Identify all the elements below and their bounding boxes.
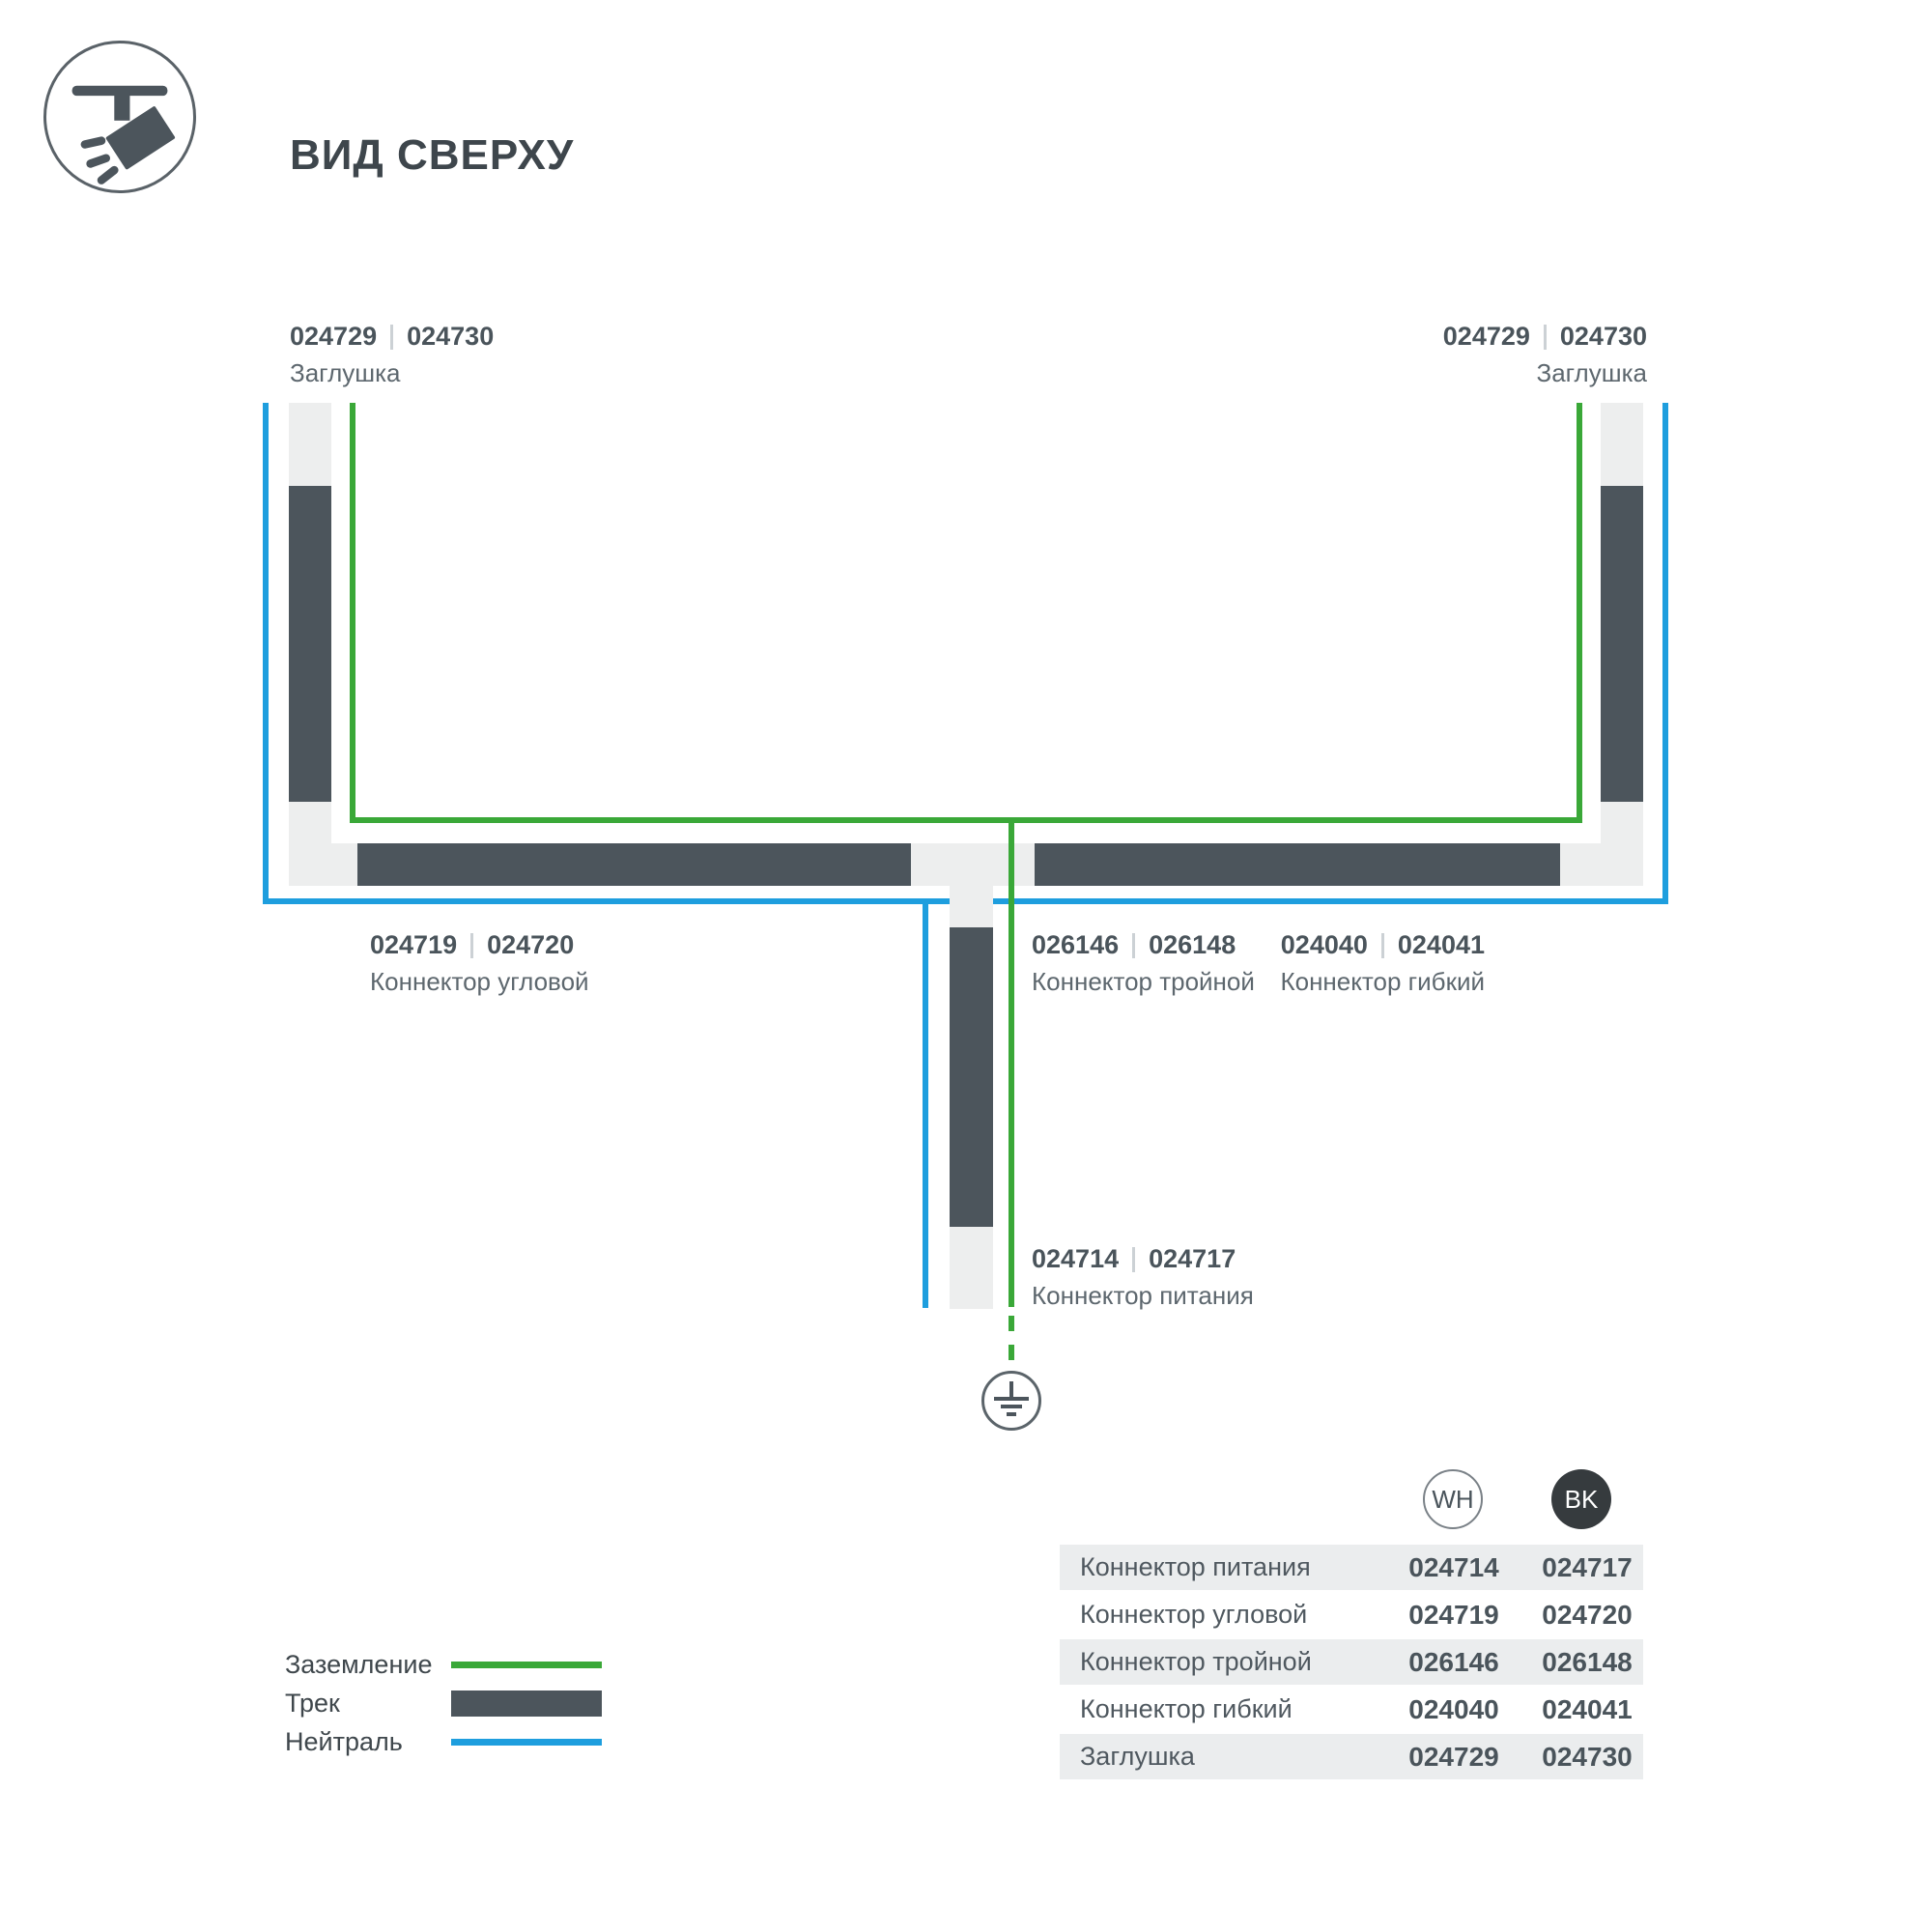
- label-triple-connector: 026146 026148 Коннектор тройной: [1032, 930, 1255, 997]
- legend-item-ground: Заземление: [285, 1646, 613, 1683]
- column-header-black: BK: [1551, 1469, 1611, 1529]
- part-codes: 024719 024720: [370, 930, 589, 960]
- part-code: 024714: [1032, 1244, 1119, 1274]
- track-segment-left: [289, 486, 331, 802]
- part-name: Заглушка: [290, 358, 494, 388]
- label-endcap-right: 024729 024730 Заглушка: [1443, 322, 1647, 388]
- table-row: Коннектор тройной 026146 026148: [1060, 1639, 1643, 1685]
- legend-label: Заземление: [285, 1650, 451, 1680]
- code-wh: 024719: [1386, 1600, 1521, 1631]
- part-code: 024730: [407, 322, 494, 352]
- label-flexible-connector: 024040 024041 Коннектор гибкий: [1280, 930, 1485, 997]
- code-divider: [1132, 1247, 1135, 1272]
- code-bk: 024720: [1520, 1600, 1655, 1631]
- part-name: Коннектор гибкий: [1280, 967, 1485, 997]
- row-label: Заглушка: [1080, 1742, 1195, 1772]
- part-name: Коннектор угловой: [370, 967, 589, 997]
- part-code: 024729: [1443, 322, 1530, 352]
- legend-label: Трек: [285, 1689, 451, 1719]
- part-code: 024040: [1281, 930, 1368, 960]
- ground-line-bottom: [350, 817, 1582, 823]
- track-light-icon: [43, 41, 196, 193]
- code-wh: 026146: [1386, 1647, 1521, 1678]
- row-label: Коннектор угловой: [1080, 1600, 1307, 1630]
- ground-line-feed-dashed: [1009, 1316, 1014, 1362]
- label-endcap-left: 024729 024730 Заглушка: [290, 322, 494, 388]
- track-light-glyph: [46, 43, 193, 190]
- code-bk: 024041: [1520, 1694, 1655, 1725]
- part-code: 024719: [370, 930, 457, 960]
- page-title: ВИД СВЕРХУ: [290, 131, 574, 180]
- part-codes: 026146 026148: [1032, 930, 1255, 960]
- code-bk: 024717: [1520, 1552, 1655, 1583]
- row-label: Коннектор питания: [1080, 1552, 1311, 1582]
- earth-ground-icon: [981, 1371, 1041, 1431]
- neutral-line-feed: [923, 904, 928, 1308]
- ground-line-feed: [1009, 823, 1014, 1307]
- row-label: Коннектор тройной: [1080, 1647, 1312, 1677]
- part-code: 026148: [1149, 930, 1236, 960]
- code-divider: [1381, 933, 1384, 958]
- ground-line-right: [1577, 403, 1582, 823]
- part-code: 024720: [487, 930, 574, 960]
- neutral-line-swatch: [451, 1739, 602, 1746]
- column-code: BK: [1565, 1485, 1599, 1515]
- track-segment-right: [1601, 486, 1643, 802]
- code-divider: [1544, 325, 1547, 350]
- table-row: Коннектор гибкий 024040 024041: [1060, 1687, 1643, 1732]
- part-codes: 024729 024730: [1443, 322, 1647, 352]
- label-power-connector: 024714 024717 Коннектор питания: [1032, 1244, 1254, 1311]
- page: ВИД СВЕРХУ 024729 02473: [0, 0, 1932, 1932]
- code-wh: 024040: [1386, 1694, 1521, 1725]
- code-wh: 024729: [1386, 1742, 1521, 1773]
- legend-item-track: Трек: [285, 1685, 613, 1721]
- code-divider: [1132, 933, 1135, 958]
- table-row: Заглушка 024729 024730: [1060, 1734, 1643, 1779]
- part-code: 024730: [1560, 322, 1647, 352]
- parts-table: Коннектор питания 024714 024717 Коннекто…: [1060, 1545, 1643, 1781]
- part-code: 024729: [290, 322, 377, 352]
- table-row: Коннектор питания 024714 024717: [1060, 1545, 1643, 1590]
- ground-line-swatch: [451, 1662, 602, 1668]
- part-code: 026146: [1032, 930, 1119, 960]
- part-code: 024041: [1398, 930, 1485, 960]
- row-label: Коннектор гибкий: [1080, 1694, 1293, 1724]
- track-swatch: [451, 1690, 602, 1717]
- code-bk: 026148: [1520, 1647, 1655, 1678]
- part-codes: 024729 024730: [290, 322, 494, 352]
- neutral-line-right: [1662, 403, 1668, 904]
- track-segment-feed: [950, 927, 993, 1227]
- table-row: Коннектор угловой 024719 024720: [1060, 1592, 1643, 1637]
- legend-item-neutral: Нейтраль: [285, 1723, 613, 1760]
- part-code: 024717: [1149, 1244, 1236, 1274]
- part-name: Коннектор тройной: [1032, 967, 1255, 997]
- track-segment-bottom-right: [1035, 843, 1560, 886]
- code-divider: [390, 325, 393, 350]
- column-header-white: WH: [1423, 1469, 1483, 1529]
- part-name: Заглушка: [1443, 358, 1647, 388]
- track-segment-bottom-left: [357, 843, 911, 886]
- part-codes: 024714 024717: [1032, 1244, 1254, 1274]
- ground-line-left: [350, 403, 355, 823]
- legend-label: Нейтраль: [285, 1727, 451, 1757]
- neutral-line-left: [263, 403, 269, 904]
- code-bk: 024730: [1520, 1742, 1655, 1773]
- code-divider: [470, 933, 473, 958]
- code-wh: 024714: [1386, 1552, 1521, 1583]
- part-codes: 024040 024041: [1280, 930, 1485, 960]
- part-name: Коннектор питания: [1032, 1281, 1254, 1311]
- column-code: WH: [1432, 1485, 1473, 1515]
- label-corner-connector: 024719 024720 Коннектор угловой: [370, 930, 589, 997]
